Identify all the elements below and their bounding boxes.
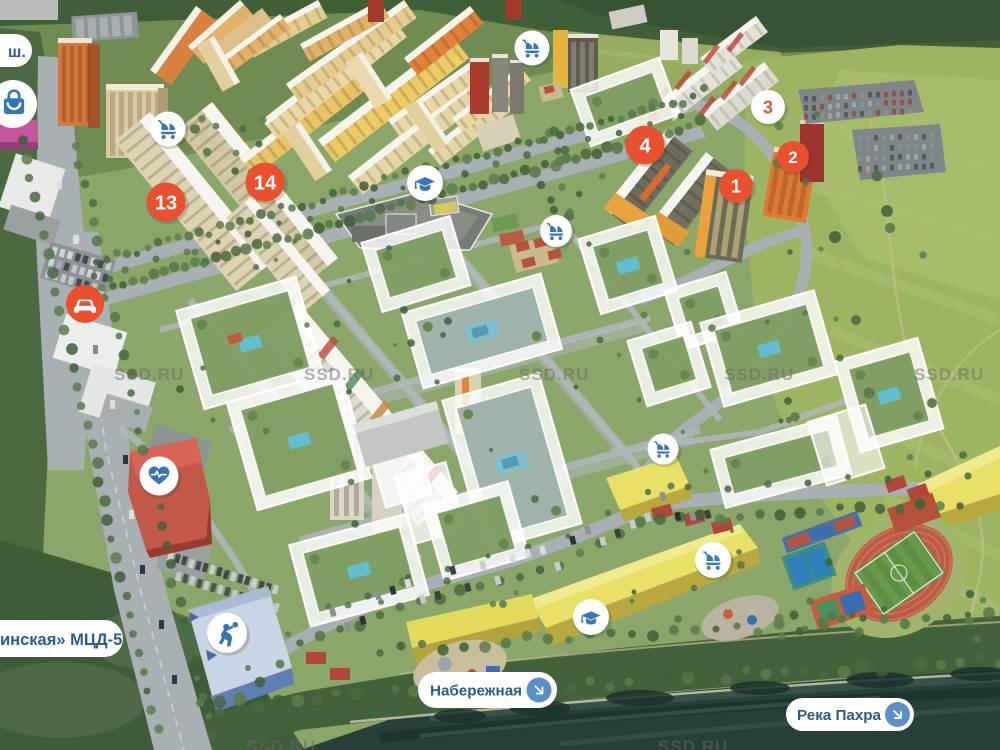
svg-text:3: 3: [763, 97, 773, 117]
svg-text:14: 14: [254, 172, 277, 194]
svg-text:SSD.RU: SSD.RU: [658, 737, 728, 750]
svg-text:SSD.RU: SSD.RU: [914, 365, 984, 384]
svg-text:SSD.RU: SSD.RU: [304, 365, 374, 384]
svg-text:SSD.RU: SSD.RU: [246, 737, 316, 750]
svg-text:Набережная: Набережная: [430, 683, 522, 700]
svg-text:SSD.RU: SSD.RU: [724, 365, 794, 384]
svg-text:4: 4: [639, 135, 651, 157]
svg-text:Река Пахра: Река Пахра: [797, 707, 882, 724]
svg-text:2: 2: [788, 148, 797, 167]
svg-text:SSD.RU: SSD.RU: [114, 365, 184, 384]
svg-text:13: 13: [155, 192, 177, 214]
svg-text:1: 1: [731, 176, 741, 196]
svg-text:SSD.RU: SSD.RU: [519, 365, 589, 384]
svg-text:ш.: ш.: [8, 44, 26, 61]
svg-text:инская» МЦД-5: инская» МЦД-5: [0, 631, 122, 649]
